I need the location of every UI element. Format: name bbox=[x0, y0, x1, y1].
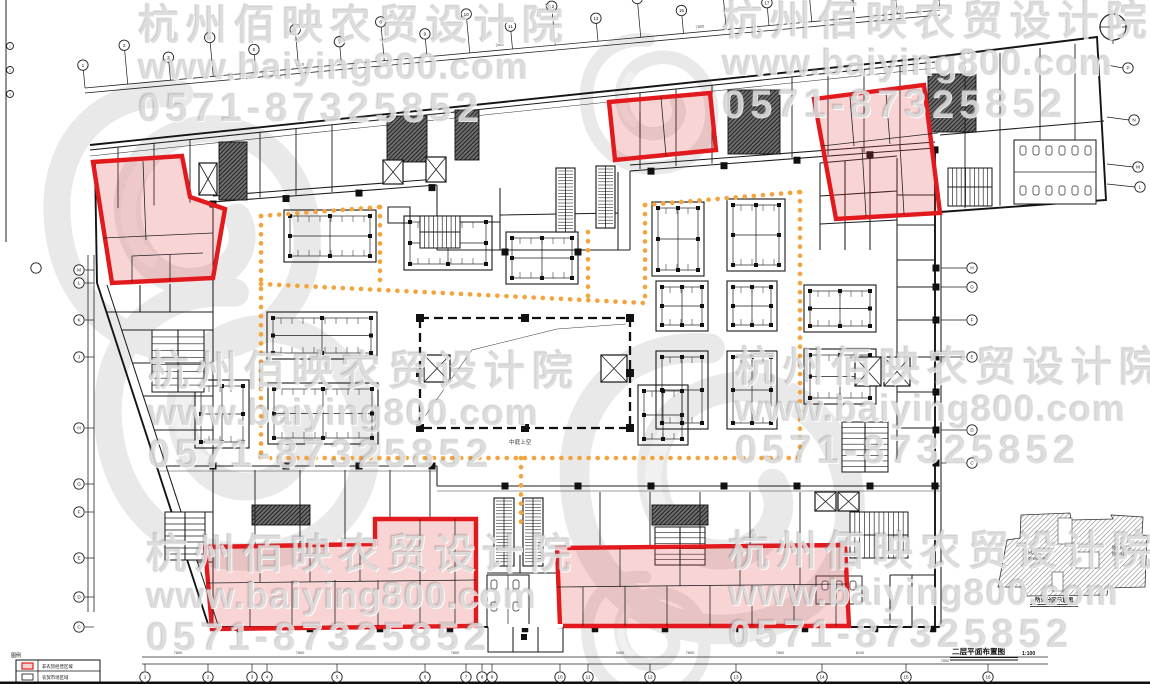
circulation-path-dots bbox=[261, 192, 800, 524]
stall-cluster bbox=[804, 285, 876, 332]
column-marker bbox=[575, 483, 582, 490]
column-marker bbox=[648, 483, 655, 490]
stall-cluster bbox=[284, 210, 376, 262]
column-marker bbox=[429, 184, 436, 191]
dimension-text: 7800 bbox=[776, 651, 784, 655]
elevator bbox=[424, 355, 450, 382]
column-marker bbox=[933, 265, 940, 272]
column-marker bbox=[626, 314, 634, 322]
grid-bubble-label: 5 bbox=[336, 675, 339, 680]
column-marker bbox=[626, 369, 634, 377]
grid-bubble-label: 7 bbox=[465, 675, 468, 680]
grid-bubble-label: E bbox=[970, 355, 973, 360]
keyplan-caption: 防火分区示意图 bbox=[1035, 596, 1073, 604]
grid-bubble-label: 12 bbox=[647, 675, 653, 680]
floor-plan-drawing: 中庭上空 bbox=[0, 0, 1150, 684]
stall-cluster bbox=[267, 312, 377, 359]
column-marker bbox=[794, 483, 801, 490]
stall-cluster bbox=[638, 385, 688, 445]
legend-item-label: 非农贸经营区域 bbox=[42, 663, 73, 670]
stall-cluster bbox=[727, 351, 777, 429]
grid-bubble-label: L bbox=[1139, 185, 1142, 190]
grid-bubble-label: N bbox=[1132, 118, 1135, 123]
grid-bubble-label: 10 bbox=[557, 675, 563, 680]
elevator bbox=[199, 163, 217, 195]
title-scale: 1:100 bbox=[1022, 651, 1035, 657]
column-marker bbox=[429, 463, 436, 470]
column-marker bbox=[932, 483, 939, 490]
grid-bubble-label: 9 bbox=[424, 32, 427, 37]
toilet-seat-icon bbox=[850, 581, 856, 590]
column-marker bbox=[575, 249, 582, 256]
toilet-seat-icon bbox=[513, 580, 519, 589]
column-marker bbox=[933, 460, 940, 467]
left-axis-grid: MLKJHGFEDC123 bbox=[7, 43, 95, 633]
dimension-text: 8100 bbox=[856, 651, 864, 655]
grid-bubble-label: 13 bbox=[593, 16, 599, 21]
grid-bubble-label: M bbox=[1136, 165, 1140, 170]
grid-bubble-label: 4 bbox=[266, 675, 269, 680]
grid-bubble-label: 2 bbox=[123, 43, 126, 48]
column-marker bbox=[794, 157, 801, 164]
keyplan-zone1-area: 约2996.22㎡ bbox=[1026, 556, 1048, 561]
elevator bbox=[383, 160, 403, 184]
elevator bbox=[815, 492, 836, 511]
grid-bubble-label: J bbox=[78, 355, 80, 360]
toilet-seat-icon bbox=[1059, 186, 1065, 195]
toilet-seat-icon bbox=[491, 580, 497, 589]
grid-bubble-label: 2 bbox=[207, 675, 210, 680]
column-marker bbox=[356, 190, 363, 197]
staircase bbox=[948, 168, 992, 206]
fire-compartment-keyplan: 防火分区一 约2996.22㎡ 防火分区二 约2552.74㎡ 防火分区示意图 bbox=[998, 513, 1147, 607]
column-marker bbox=[416, 369, 424, 377]
grid-bubble-label: H bbox=[970, 266, 973, 271]
column-marker bbox=[867, 483, 874, 490]
dimension-text: 7800 bbox=[451, 651, 459, 655]
grid-bubble-label: 8 bbox=[481, 675, 484, 680]
escalator bbox=[556, 168, 575, 232]
grid-bubble-label: 11 bbox=[508, 24, 513, 29]
grid-bubble-label: 10 bbox=[464, 12, 470, 17]
toilet-seat-icon bbox=[1085, 186, 1091, 195]
toilet-seat-icon bbox=[513, 602, 519, 611]
grid-bubble-label: 12 bbox=[549, 4, 555, 9]
grid-bubble bbox=[31, 263, 41, 273]
grid-bubble-label: H bbox=[77, 426, 80, 431]
staircase bbox=[420, 216, 460, 248]
elevator bbox=[855, 357, 881, 386]
toilet-seat-icon bbox=[1020, 186, 1026, 195]
stall-cluster bbox=[727, 281, 777, 331]
column-marker bbox=[626, 424, 634, 432]
grid-bubble-label: 9 bbox=[491, 675, 494, 680]
grid-bubble-label: 4 bbox=[208, 35, 211, 40]
highlight-zone-bottom-left bbox=[205, 519, 476, 629]
elevator bbox=[884, 357, 910, 386]
dimension-text: 7800 bbox=[686, 651, 694, 655]
grid-bubble-label: 3 bbox=[251, 675, 254, 680]
grid-bubble-label: 6 bbox=[294, 27, 297, 32]
staircase bbox=[165, 512, 205, 560]
legend-heading: 图例 bbox=[11, 652, 21, 659]
legend-swatch-highlight bbox=[22, 663, 33, 669]
escalator bbox=[596, 166, 615, 228]
grid-bubble-label: F bbox=[78, 510, 81, 515]
toilet-seat-icon bbox=[1046, 146, 1052, 155]
elevator bbox=[601, 355, 627, 382]
grid-bubble-label: M bbox=[77, 268, 81, 273]
highlight-zone-top-middle bbox=[609, 93, 716, 160]
grid-bubble-label: 11 bbox=[586, 675, 591, 680]
column-marker bbox=[930, 626, 937, 633]
staircase bbox=[850, 512, 908, 558]
keyplan-zone2-area: 约2552.74㎡ bbox=[1112, 551, 1134, 556]
grid-bubble-label: 15 bbox=[903, 675, 909, 680]
legend-item-label: 农贸市场区域 bbox=[42, 674, 69, 681]
grid-bubble-label: 14 bbox=[819, 675, 825, 680]
grid-bubble-label: 16 bbox=[985, 675, 991, 680]
toilet-seat-icon bbox=[1072, 146, 1078, 155]
bottom-axis-grid: 12345678910111213141516 bbox=[140, 657, 1048, 682]
column-marker bbox=[521, 424, 529, 432]
grid-bubble-label: F bbox=[971, 318, 974, 323]
stall-cluster bbox=[656, 351, 708, 429]
toilet-seat-icon bbox=[1033, 146, 1039, 155]
column-marker bbox=[502, 483, 509, 490]
column-marker bbox=[283, 463, 290, 470]
stall-cluster bbox=[652, 202, 704, 276]
dimension-text: 7800 bbox=[174, 651, 182, 655]
dimension-text: 3400 bbox=[616, 651, 624, 655]
grid-bubble-label: 3 bbox=[167, 55, 170, 60]
toilet-seat-icon bbox=[1059, 146, 1065, 155]
atrium-label: 中庭上空 bbox=[509, 438, 532, 446]
column-marker bbox=[283, 195, 290, 202]
column-marker bbox=[416, 424, 424, 432]
top-axis-grid: 123456789101112131415161718192021 bbox=[78, 0, 943, 93]
grid-bubble-label: G bbox=[77, 482, 81, 487]
dimension-text: 7800 bbox=[296, 63, 305, 68]
column-marker bbox=[416, 314, 424, 322]
drawing-title: 二层平面布置图 1:100 bbox=[950, 646, 1035, 660]
highlight-zone-top-right bbox=[814, 85, 940, 219]
cad-plan-canvas: 中庭上空 bbox=[0, 0, 1150, 684]
staircase bbox=[842, 422, 888, 472]
column-marker bbox=[721, 483, 728, 490]
grid-bubble-label: 14 bbox=[635, 0, 641, 1]
toilet-seat-icon bbox=[1072, 186, 1078, 195]
grid-bubble-label: 15 bbox=[679, 8, 685, 13]
keyplan-zone1-name: 防火分区一 bbox=[1026, 550, 1046, 555]
stall-cluster bbox=[727, 199, 785, 271]
column-marker bbox=[502, 249, 509, 256]
grid-bubble-label: E bbox=[77, 556, 80, 561]
column-marker bbox=[648, 168, 655, 175]
grid-bubble-label: 5 bbox=[253, 47, 256, 52]
toilet-seat-icon bbox=[1020, 146, 1026, 155]
grid-bubble-label: 6 bbox=[424, 675, 427, 680]
toilet-seat-icon bbox=[1085, 146, 1091, 155]
title-text: 二层平面布置图 bbox=[952, 646, 1006, 656]
dimension-text: 7800 bbox=[296, 651, 304, 655]
toilet-seat-icon bbox=[491, 602, 497, 611]
column-marker bbox=[210, 463, 217, 470]
column-marker bbox=[521, 314, 529, 322]
escalators bbox=[494, 166, 615, 566]
keyplan-zone2-name: 防火分区二 bbox=[1112, 545, 1132, 550]
grid-bubble-label: 13 bbox=[733, 675, 739, 680]
staircase bbox=[152, 330, 204, 392]
grid-bubble-label: 8 bbox=[379, 20, 382, 25]
column-marker bbox=[356, 463, 363, 470]
stall-cluster bbox=[268, 383, 378, 444]
legend-table: 图例 非农贸经营区域 农贸市场区域 bbox=[11, 652, 100, 682]
column-marker bbox=[872, 626, 879, 633]
grid-bubble-label: P bbox=[1126, 66, 1129, 71]
escalator bbox=[523, 498, 543, 566]
stall-cluster bbox=[656, 281, 708, 331]
escalator bbox=[494, 498, 514, 566]
elevator bbox=[838, 492, 859, 511]
grid-bubble-label: G bbox=[970, 285, 974, 290]
grid-bubble-label: 17 bbox=[764, 0, 770, 5]
grid-bubble-label: 1 bbox=[82, 63, 85, 68]
elevator bbox=[426, 157, 446, 182]
dimension-text: 7800 bbox=[941, 659, 949, 663]
grid-bubble-label: L bbox=[78, 281, 81, 286]
toilet-seat-icon bbox=[1046, 186, 1052, 195]
dimension-text: 3400 bbox=[496, 43, 505, 48]
market-stall-clusters bbox=[195, 199, 876, 448]
dimension-text: 7800 bbox=[696, 25, 705, 30]
stall-cluster bbox=[506, 232, 578, 284]
toilet-seat-icon bbox=[1033, 186, 1039, 195]
legend-swatch-open bbox=[22, 674, 33, 680]
column-marker bbox=[721, 162, 728, 169]
grid-bubble-label: 7 bbox=[338, 39, 341, 44]
grid-bubble-label: 1 bbox=[144, 675, 147, 680]
